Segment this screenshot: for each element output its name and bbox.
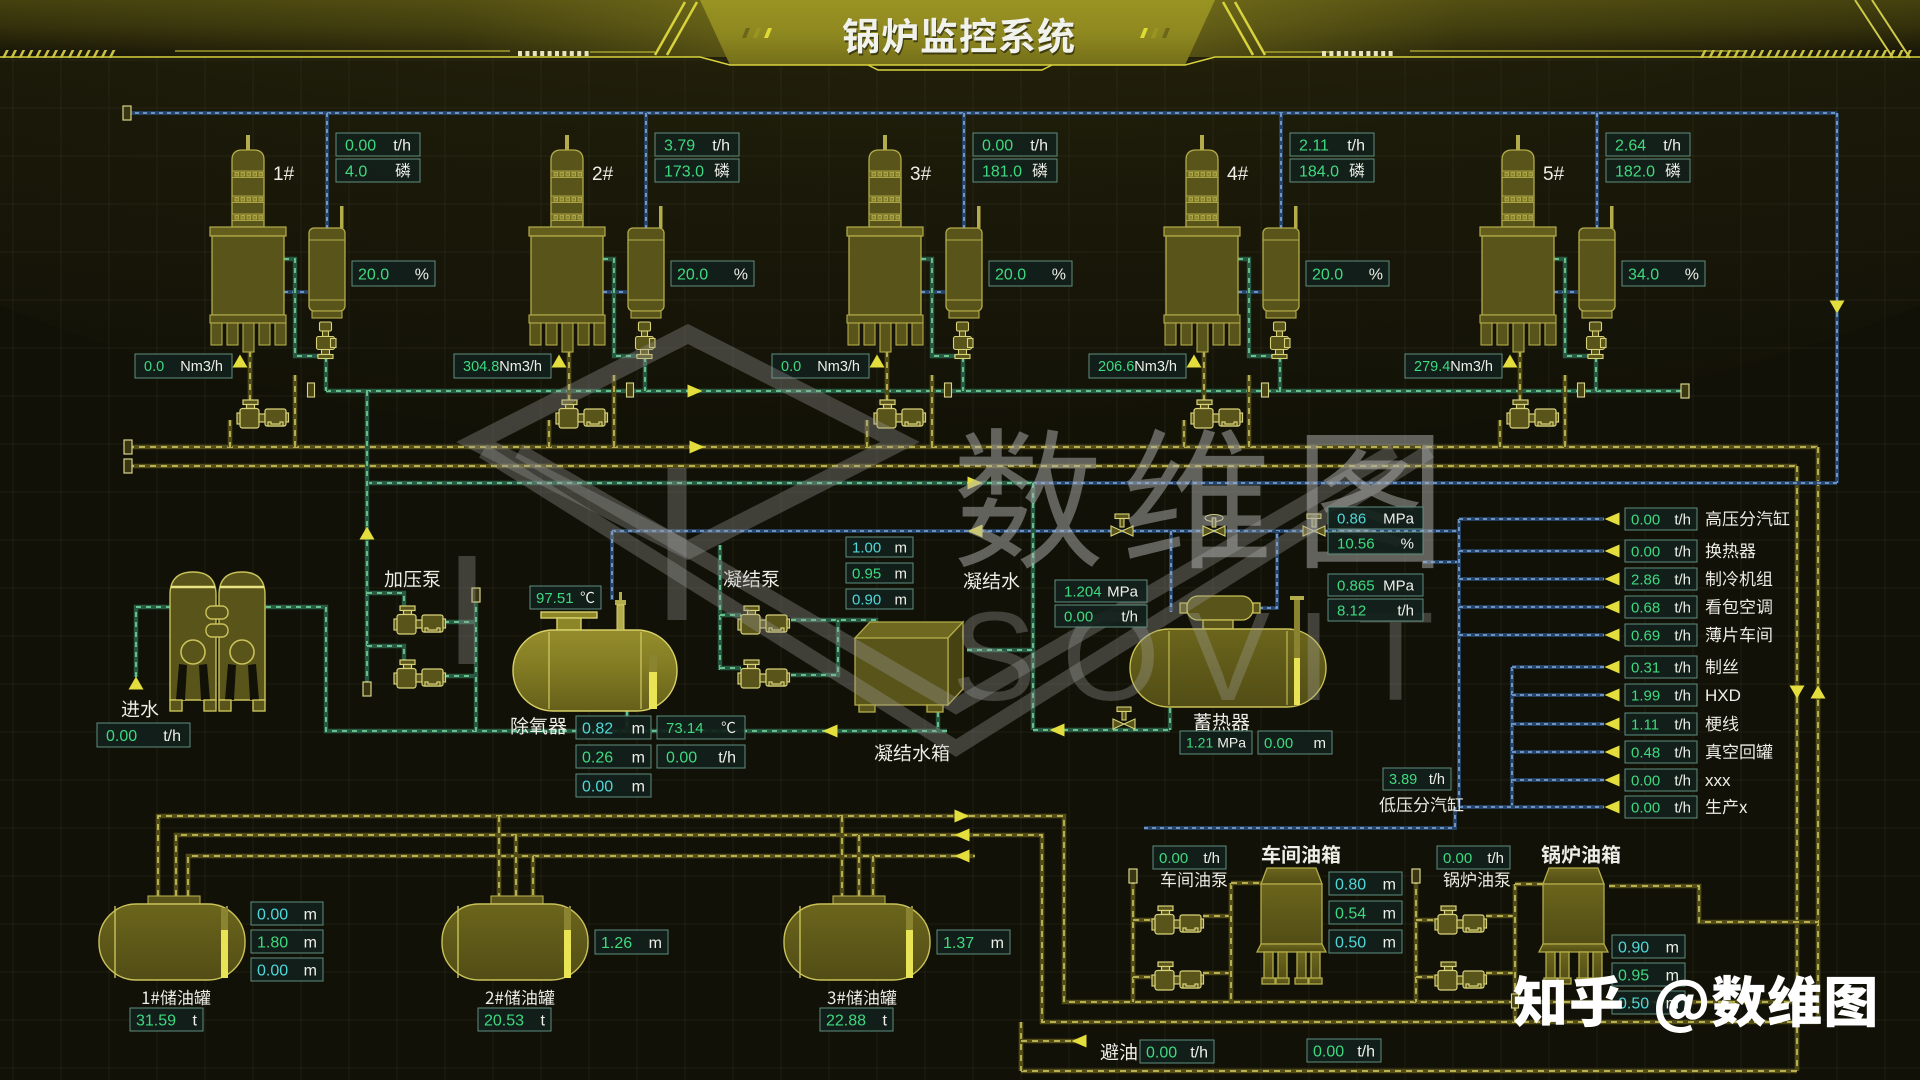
svg-text:MPa: MPa bbox=[1217, 735, 1246, 751]
svg-text:m: m bbox=[1314, 735, 1327, 752]
svg-text:0.00: 0.00 bbox=[1264, 735, 1293, 752]
svg-text:t/h: t/h bbox=[1429, 772, 1445, 788]
svg-text:t/h: t/h bbox=[1347, 137, 1365, 154]
svg-text:t: t bbox=[883, 1012, 888, 1029]
svg-text:0.31: 0.31 bbox=[1631, 659, 1660, 676]
svg-text:0.26: 0.26 bbox=[582, 749, 613, 766]
svg-text:1.26: 1.26 bbox=[601, 935, 632, 952]
svg-text:t/h: t/h bbox=[163, 728, 181, 745]
svg-text:m: m bbox=[632, 720, 645, 737]
svg-text:m: m bbox=[895, 539, 908, 556]
svg-text:0.00: 0.00 bbox=[1631, 543, 1660, 560]
svg-text:t: t bbox=[193, 1012, 198, 1029]
svg-text:t/h: t/h bbox=[1674, 659, 1691, 676]
svg-text:t/h: t/h bbox=[1190, 1044, 1208, 1061]
svg-text:1.80: 1.80 bbox=[257, 934, 288, 951]
svg-text:m: m bbox=[632, 749, 645, 766]
svg-text:0.95: 0.95 bbox=[852, 565, 881, 582]
svg-text:3#: 3# bbox=[910, 164, 932, 185]
svg-text:m: m bbox=[1383, 934, 1396, 951]
svg-text:%: % bbox=[415, 266, 429, 283]
svg-text:0.00: 0.00 bbox=[106, 728, 137, 745]
svg-text:1.00: 1.00 bbox=[852, 539, 881, 556]
svg-text:HXD: HXD bbox=[1705, 686, 1741, 705]
svg-text:0.50: 0.50 bbox=[1335, 934, 1366, 951]
svg-text:0.00: 0.00 bbox=[257, 906, 288, 923]
svg-text:4.0: 4.0 bbox=[345, 163, 367, 180]
svg-text:m: m bbox=[1383, 905, 1396, 922]
svg-text:Nm3/h: Nm3/h bbox=[180, 359, 223, 375]
svg-text:0.82: 0.82 bbox=[582, 720, 613, 737]
svg-text:t/h: t/h bbox=[1674, 687, 1691, 704]
svg-text:1.99: 1.99 bbox=[1631, 687, 1660, 704]
svg-text:0.86: 0.86 bbox=[1337, 510, 1366, 527]
svg-text:m: m bbox=[632, 778, 645, 795]
svg-text:1.21: 1.21 bbox=[1186, 735, 1213, 751]
svg-text:t/h: t/h bbox=[1121, 608, 1138, 625]
svg-text:20.0: 20.0 bbox=[677, 266, 708, 283]
svg-text:2.64: 2.64 bbox=[1615, 137, 1646, 154]
svg-text:%: % bbox=[1052, 266, 1066, 283]
svg-text:0.00: 0.00 bbox=[1064, 608, 1093, 625]
svg-text:t/h: t/h bbox=[718, 749, 736, 766]
svg-text:xxx: xxx bbox=[1705, 771, 1731, 790]
svg-text:1.204: 1.204 bbox=[1064, 583, 1102, 600]
svg-text:t/h: t/h bbox=[1674, 571, 1691, 588]
svg-text:%: % bbox=[1685, 266, 1699, 283]
svg-text:t/h: t/h bbox=[712, 137, 730, 154]
svg-text:%: % bbox=[1401, 535, 1414, 552]
svg-text:0.0: 0.0 bbox=[781, 359, 801, 375]
svg-text:182.0: 182.0 bbox=[1615, 163, 1655, 180]
svg-text:0.00: 0.00 bbox=[982, 137, 1013, 154]
svg-text:0.00: 0.00 bbox=[666, 749, 697, 766]
svg-text:22.88: 22.88 bbox=[826, 1012, 866, 1029]
svg-text:MPa: MPa bbox=[1107, 583, 1139, 600]
svg-text:20.0: 20.0 bbox=[358, 266, 389, 283]
svg-text:t/h: t/h bbox=[1674, 543, 1691, 560]
svg-text:m: m bbox=[649, 935, 662, 952]
svg-text:t/h: t/h bbox=[1357, 1043, 1375, 1060]
svg-text:1.37: 1.37 bbox=[943, 935, 974, 952]
svg-text:t/h: t/h bbox=[1674, 744, 1691, 761]
svg-text:t/h: t/h bbox=[1203, 850, 1220, 867]
svg-text:%: % bbox=[734, 266, 748, 283]
svg-text:0.54: 0.54 bbox=[1335, 905, 1366, 922]
svg-text:0.00: 0.00 bbox=[345, 137, 376, 154]
svg-text:206.6: 206.6 bbox=[1098, 359, 1134, 375]
svg-text:Nm3/h: Nm3/h bbox=[1450, 359, 1493, 375]
svg-text:t/h: t/h bbox=[1674, 799, 1691, 816]
svg-text:4#: 4# bbox=[1227, 164, 1249, 185]
svg-text:20.0: 20.0 bbox=[1312, 266, 1343, 283]
svg-text:m: m bbox=[304, 906, 317, 923]
svg-text:0.00: 0.00 bbox=[1146, 1044, 1177, 1061]
svg-text:0.00: 0.00 bbox=[582, 778, 613, 795]
svg-text:t/h: t/h bbox=[1397, 602, 1414, 619]
svg-text:t/h: t/h bbox=[1674, 716, 1691, 733]
svg-text:0.50: 0.50 bbox=[1618, 995, 1649, 1012]
svg-text:10.56: 10.56 bbox=[1337, 535, 1375, 552]
svg-text:2#: 2# bbox=[592, 164, 614, 185]
svg-text:t/h: t/h bbox=[1030, 137, 1048, 154]
svg-text:184.0: 184.0 bbox=[1299, 163, 1339, 180]
svg-text:t/h: t/h bbox=[1663, 137, 1681, 154]
svg-text:m: m bbox=[304, 934, 317, 951]
svg-text:MPa: MPa bbox=[1383, 577, 1415, 594]
svg-text:m: m bbox=[1383, 876, 1396, 893]
svg-text:34.0: 34.0 bbox=[1628, 266, 1659, 283]
svg-text:Nm3/h: Nm3/h bbox=[817, 359, 860, 375]
svg-text:2.11: 2.11 bbox=[1299, 137, 1329, 154]
svg-text:1#: 1# bbox=[273, 164, 295, 185]
svg-text:0.90: 0.90 bbox=[852, 591, 881, 608]
svg-text:t/h: t/h bbox=[1487, 850, 1504, 867]
svg-text:t/h: t/h bbox=[393, 137, 411, 154]
svg-text:181.0: 181.0 bbox=[982, 163, 1022, 180]
svg-text:0.0: 0.0 bbox=[144, 359, 164, 375]
svg-text:0.00: 0.00 bbox=[1313, 1043, 1344, 1060]
svg-text:0.00: 0.00 bbox=[1159, 850, 1188, 867]
svg-text:m: m bbox=[304, 962, 317, 979]
svg-text:0.90: 0.90 bbox=[1618, 939, 1649, 956]
svg-text:m: m bbox=[991, 935, 1004, 952]
svg-text:2.86: 2.86 bbox=[1631, 571, 1660, 588]
svg-text:0.95: 0.95 bbox=[1618, 967, 1649, 984]
svg-text:31.59: 31.59 bbox=[136, 1012, 176, 1029]
svg-text:3.89: 3.89 bbox=[1389, 772, 1417, 788]
svg-text:1.11: 1.11 bbox=[1631, 716, 1659, 733]
svg-text:MPa: MPa bbox=[1383, 510, 1415, 527]
svg-text:t: t bbox=[541, 1012, 546, 1029]
svg-text:5#: 5# bbox=[1543, 164, 1565, 185]
svg-text:0.69: 0.69 bbox=[1631, 627, 1660, 644]
svg-text:73.14: 73.14 bbox=[666, 720, 704, 737]
svg-text:20.0: 20.0 bbox=[995, 266, 1026, 283]
svg-text:304.8: 304.8 bbox=[463, 359, 499, 375]
svg-text:t/h: t/h bbox=[1674, 599, 1691, 616]
svg-text:0.865: 0.865 bbox=[1337, 577, 1375, 594]
svg-text:m: m bbox=[895, 565, 908, 582]
svg-text:0.68: 0.68 bbox=[1631, 599, 1660, 616]
svg-text:Nm3/h: Nm3/h bbox=[1134, 359, 1177, 375]
svg-text:0.00: 0.00 bbox=[1443, 850, 1472, 867]
svg-text:8.12: 8.12 bbox=[1337, 602, 1366, 619]
svg-text:t/h: t/h bbox=[1674, 511, 1691, 528]
svg-text:0.48: 0.48 bbox=[1631, 744, 1660, 761]
svg-text:97.51: 97.51 bbox=[536, 590, 574, 607]
svg-text:0.00: 0.00 bbox=[1631, 799, 1660, 816]
svg-text:173.0: 173.0 bbox=[664, 163, 704, 180]
svg-text:%: % bbox=[1369, 266, 1383, 283]
svg-text:t/h: t/h bbox=[1674, 627, 1691, 644]
svg-text:3.79: 3.79 bbox=[664, 137, 695, 154]
svg-text:0.80: 0.80 bbox=[1335, 876, 1366, 893]
svg-text:279.4: 279.4 bbox=[1414, 359, 1450, 375]
svg-text:0.00: 0.00 bbox=[1631, 772, 1660, 789]
svg-text:Nm3/h: Nm3/h bbox=[499, 359, 542, 375]
svg-text:m: m bbox=[895, 591, 908, 608]
svg-text:m: m bbox=[1666, 939, 1679, 956]
svg-text:20.53: 20.53 bbox=[484, 1012, 524, 1029]
svg-text:t/h: t/h bbox=[1674, 772, 1691, 789]
svg-text:0.00: 0.00 bbox=[257, 962, 288, 979]
svg-text:0.00: 0.00 bbox=[1631, 511, 1660, 528]
